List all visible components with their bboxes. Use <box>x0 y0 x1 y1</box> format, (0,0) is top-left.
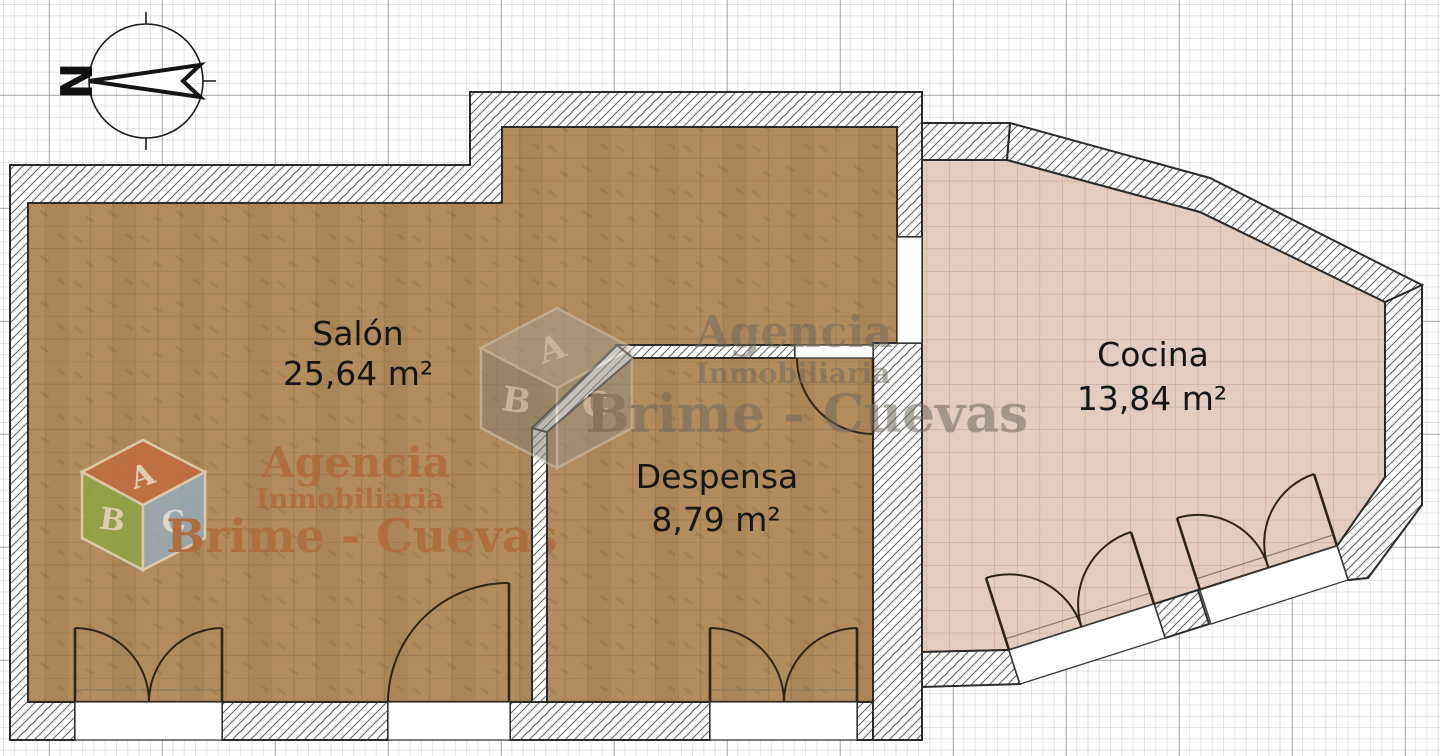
cube-letter-b: B <box>97 501 127 539</box>
watermark-brime-cuevas-gray: Brime - Cuevas <box>586 384 1028 445</box>
passage-hall-cocina <box>897 237 922 343</box>
north-arrow <box>89 65 200 97</box>
wall-cocina-top-left <box>922 123 1010 160</box>
wall-bottom-segment <box>222 702 388 740</box>
watermark-brime-cuevas: Brime - Cuevas <box>166 509 557 563</box>
room-area-despensa: 8,79 m² <box>651 500 780 539</box>
room-label-salon: Salón <box>312 314 403 353</box>
north-compass-icon: N <box>52 12 216 150</box>
wall-bottom-segment <box>510 702 710 740</box>
room-area-salon: 25,64 m² <box>283 354 433 393</box>
floor-plan: A B C Agencia Inmobiliaria Brime - Cueva… <box>0 0 1440 756</box>
floor-plan-canvas: A B C Agencia Inmobiliaria Brime - Cueva… <box>0 0 1440 756</box>
room-area-cocina: 13,84 m² <box>1077 379 1227 418</box>
watermark-agencia-gray: Agencia <box>695 307 893 358</box>
wall-salon-despensa-divider <box>532 428 547 702</box>
watermark-agencia: Agencia <box>261 438 450 487</box>
room-label-despensa: Despensa <box>636 457 799 496</box>
room-label-cocina: Cocina <box>1097 335 1209 374</box>
compass-north-letter: N <box>52 63 103 100</box>
wall-cocina-bottom-left <box>922 650 1020 687</box>
cube-letter-b: B <box>499 379 533 423</box>
